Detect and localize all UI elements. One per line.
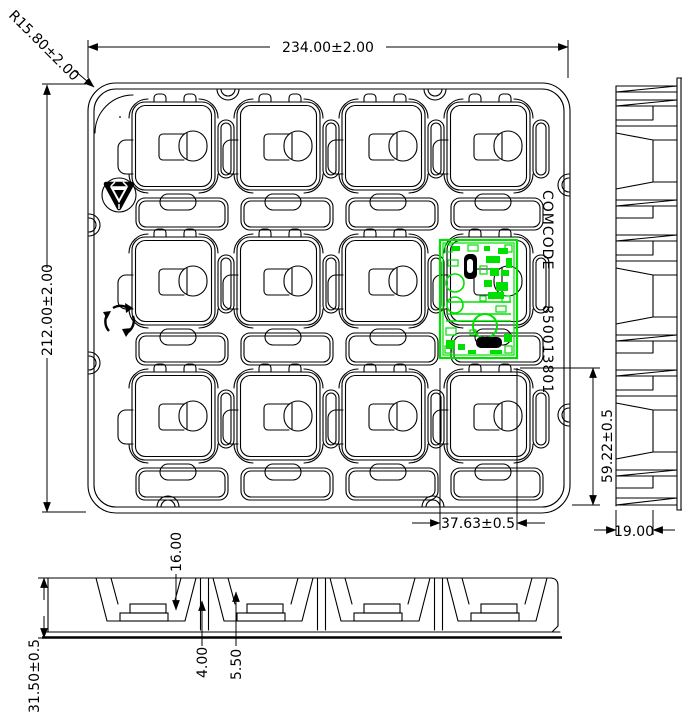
dimension-step-b: 5.50	[229, 592, 245, 680]
recycle-triangle-icon	[102, 178, 136, 212]
dim-pocket-x-label: 37.63±0.5	[441, 516, 515, 532]
dim-step-b-label: 5.50	[229, 649, 245, 680]
tray-side-view	[616, 78, 682, 510]
pocket-cell	[328, 364, 438, 500]
dim-side-width-label: 19.00	[614, 524, 654, 540]
dim-cavity-depth-label: 16.00	[169, 532, 185, 572]
dim-radius-label: R15.80±2.00	[5, 8, 82, 85]
pocket-cell	[118, 364, 228, 500]
drawing-canvas: COMCODE 850013801	[0, 0, 682, 722]
pocket-cell	[328, 94, 438, 230]
pocket-cell	[118, 229, 228, 365]
tray-top-view: COMCODE 850013801	[88, 83, 570, 513]
corner-radius-arc	[95, 95, 133, 133]
pocket-cell	[433, 364, 543, 500]
dim-step-a-label: 4.00	[195, 647, 211, 678]
recycle-loop-icon	[103, 303, 134, 337]
dimension-corner-radius: R15.80±2.00	[5, 8, 94, 87]
dimension-cavity-depth: 16.00	[169, 532, 185, 610]
dimension-overall-height: 31.50±0.5	[27, 578, 56, 713]
dimension-side-width: 19.00	[594, 510, 675, 540]
tray-front-view	[42, 578, 562, 638]
pocket-cell	[328, 229, 438, 365]
pcb-board	[440, 240, 517, 358]
dimension-width: 234.00±2.00	[88, 40, 568, 78]
dim-width-label: 234.00±2.00	[282, 40, 374, 56]
part-number-marking: 850013801	[539, 305, 555, 394]
pocket-cell	[223, 364, 333, 500]
dimension-pocket-y: 59.22±0.5	[520, 368, 616, 505]
comcode-marking: COMCODE	[539, 190, 555, 270]
drawing-page: COMCODE 850013801	[0, 0, 682, 722]
pocket-cell	[223, 94, 333, 230]
dimension-height: 212.00±2.00	[40, 84, 86, 512]
pocket-cell	[223, 229, 333, 365]
dim-pocket-y-label: 59.22±0.5	[600, 409, 616, 483]
dim-overall-height-label: 31.50±0.5	[27, 639, 43, 713]
pocket-cell	[433, 94, 543, 230]
pocket-grid	[118, 94, 549, 500]
pocket-cell	[118, 94, 228, 230]
dim-height-label: 212.00±2.00	[40, 264, 56, 356]
